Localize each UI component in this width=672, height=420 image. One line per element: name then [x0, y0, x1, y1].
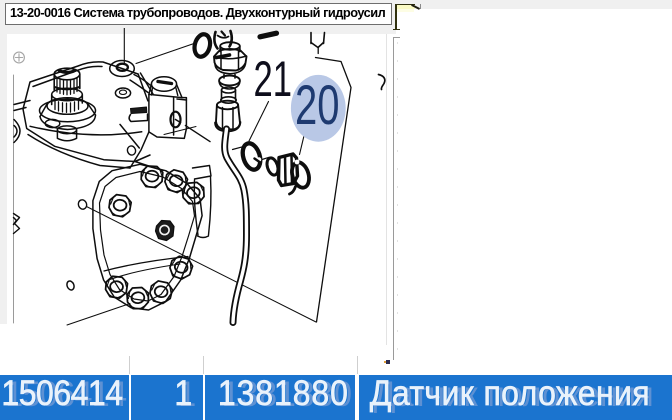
svg-text:21: 21 — [254, 50, 293, 107]
svg-text:20: 20 — [295, 74, 340, 136]
